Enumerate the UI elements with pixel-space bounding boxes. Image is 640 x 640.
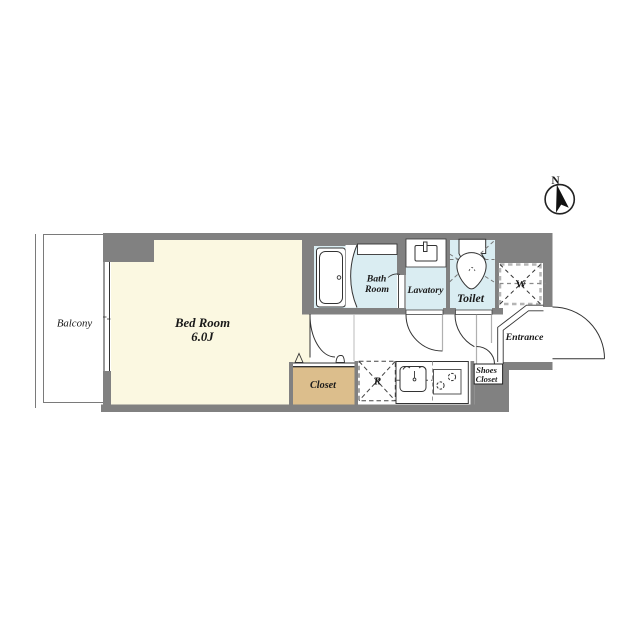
svg-text:Room: Room: [364, 284, 389, 295]
svg-text:6.0J: 6.0J: [191, 330, 214, 344]
svg-text:W: W: [516, 280, 527, 291]
svg-text:N: N: [551, 175, 560, 187]
svg-text:R: R: [373, 376, 381, 388]
svg-text:Entrance: Entrance: [505, 332, 544, 343]
svg-text:Toilet: Toilet: [457, 291, 485, 305]
svg-text:Closet: Closet: [476, 374, 498, 384]
svg-text:Lavatory: Lavatory: [407, 285, 445, 296]
svg-text:Balcony: Balcony: [57, 318, 93, 330]
svg-text:Closet: Closet: [310, 380, 337, 391]
svg-text:Bath: Bath: [366, 274, 387, 285]
svg-text:Bed Room: Bed Room: [174, 316, 230, 330]
